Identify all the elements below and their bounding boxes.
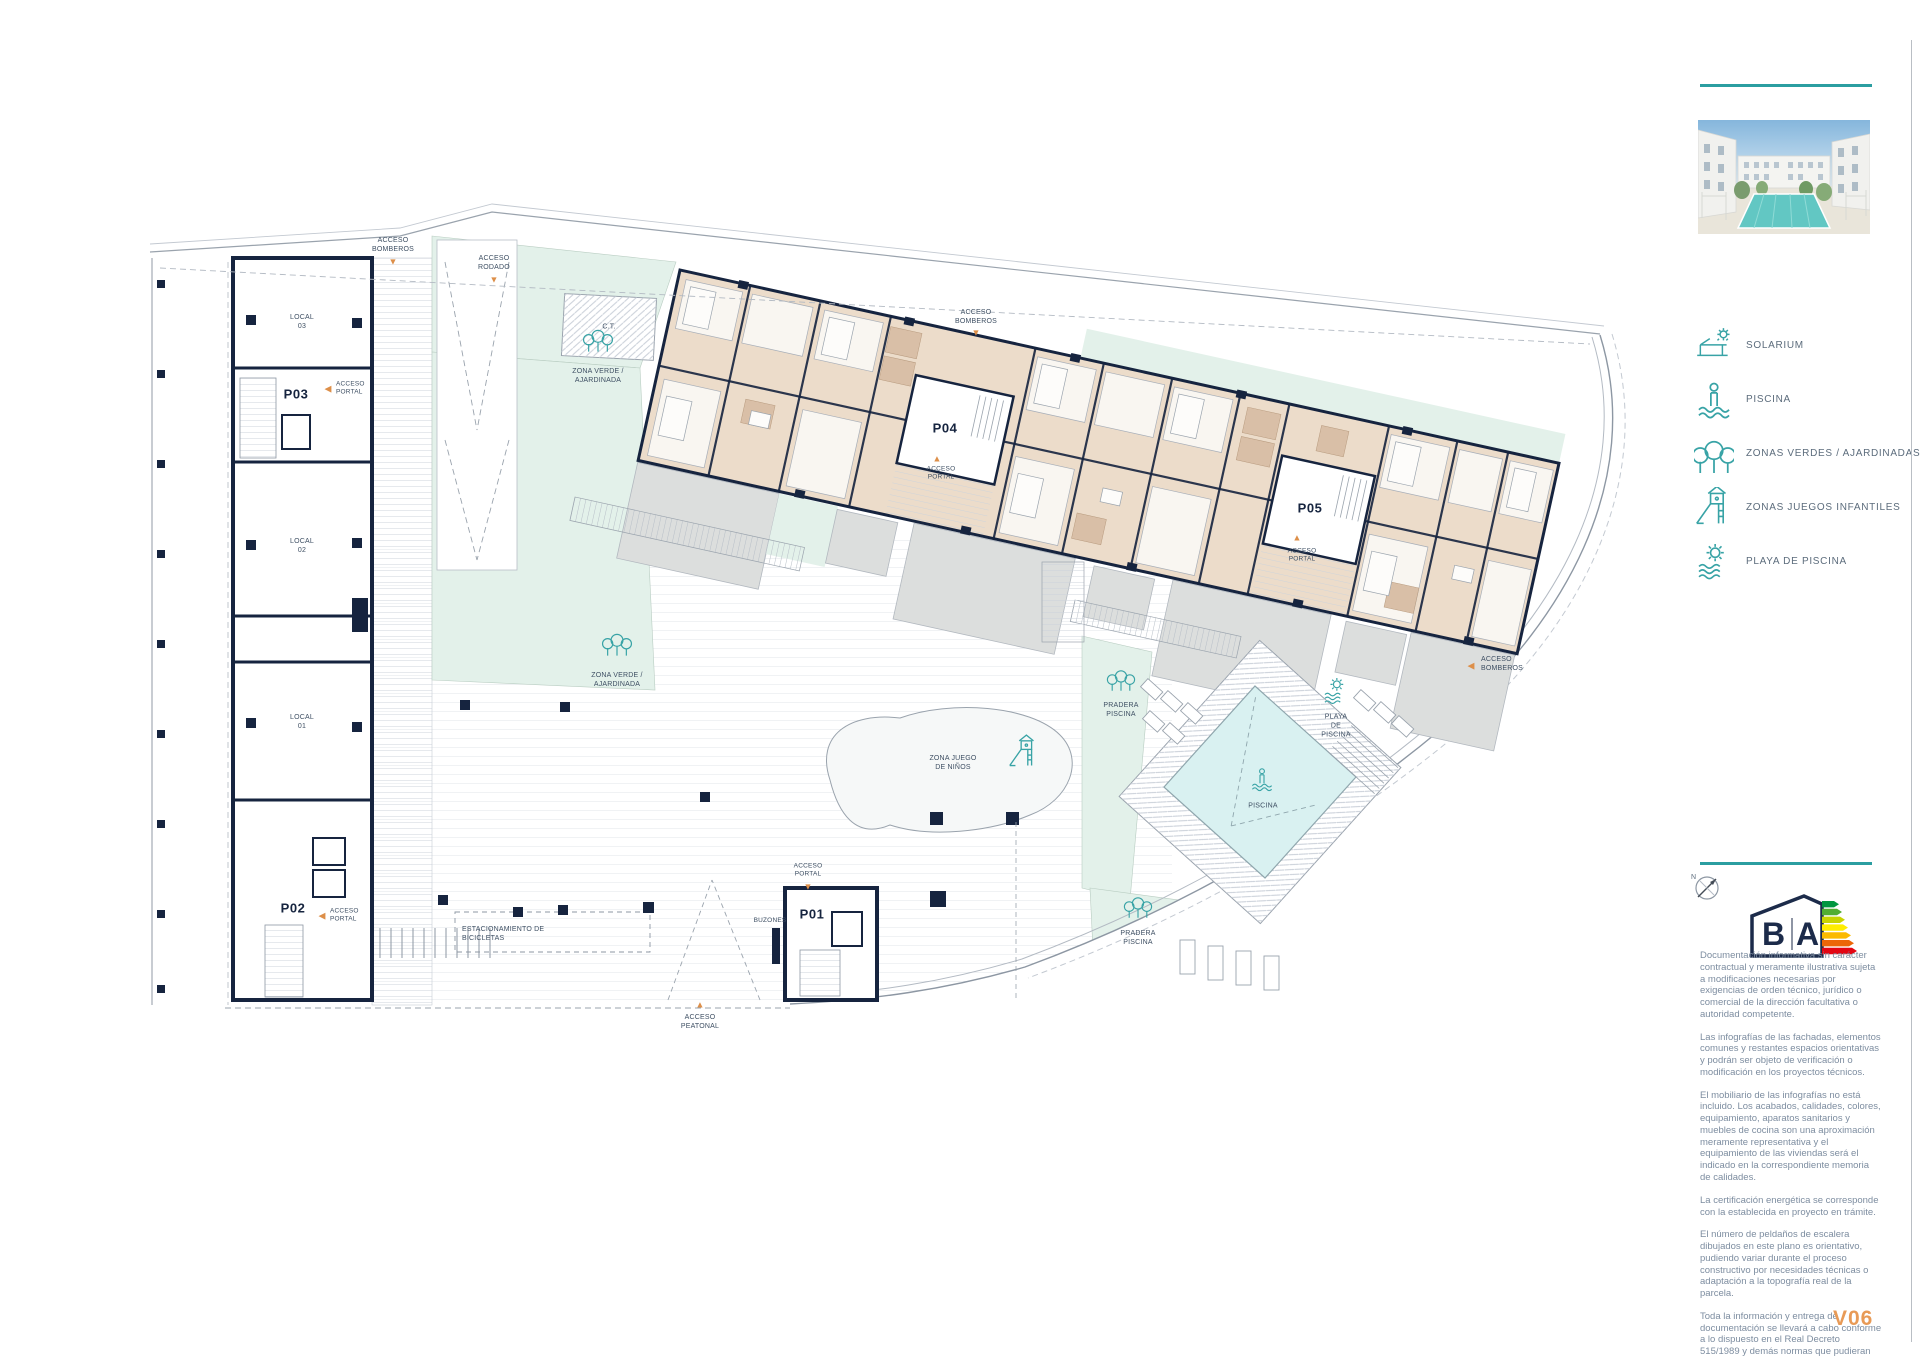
access-arrow-icon: ▼ (389, 258, 398, 267)
local-label: LOCAL 01 (290, 713, 314, 731)
access-arrow-icon: ▼ (972, 329, 981, 338)
left-building (233, 258, 372, 1000)
access-arrow-icon: ◀ (325, 385, 332, 394)
access-arrow-icon: ▲ (933, 455, 942, 464)
ct-label: C.T. (602, 322, 615, 331)
sidebar-top-rule (1700, 84, 1872, 87)
energy-letter-a: A (1796, 916, 1819, 952)
access-label-bomberos: ACCESO BOMBEROS (372, 236, 414, 254)
local-label: LOCAL 03 (290, 313, 314, 331)
compass-n-label: N (1691, 874, 1696, 881)
portal-label-p03: P03 (284, 387, 309, 402)
access-label-portal: ACCESO PORTAL (330, 908, 359, 925)
local-label: LOCAL 02 (290, 537, 314, 555)
zone-label-piscina: PISCINA (1248, 801, 1277, 810)
disclaimer-paragraph: Las infografías de las fachadas, element… (1700, 1032, 1882, 1079)
solarium-icon (1694, 325, 1734, 365)
playa-piscina-icon (1694, 541, 1734, 581)
access-label-bomberos: ACCESO BOMBEROS (1481, 655, 1523, 673)
site-plan (0, 0, 1920, 1356)
legend-item-playa-piscina: PLAYA DE PISCINA (1694, 541, 1920, 581)
walkway-strip (372, 258, 432, 1005)
legend-label: ZONAS VERDES / AJARDINADAS (1746, 448, 1920, 459)
portal-label-p05: P05 (1298, 501, 1323, 516)
portal-label-p04: P04 (933, 421, 958, 436)
access-label-portal: ACCESO PORTAL (794, 863, 823, 880)
energy-letter-b: B (1762, 916, 1785, 952)
portal-p01-block (772, 888, 877, 1000)
zone-label-verde: ZONA VERDE / AJARDINADA (572, 367, 623, 385)
zone-label-playa: PLAYA DE PISCINA (1321, 712, 1350, 739)
zone-label-pradera: PRADERA PISCINA (1103, 701, 1138, 719)
sidebar-bottom-rule (1700, 862, 1872, 865)
zone-label-verde: ZONA VERDE / AJARDINADA (591, 671, 642, 689)
legend-label: PLAYA DE PISCINA (1746, 556, 1847, 567)
mailboxes-label: BUZONES (754, 917, 787, 925)
sun-waves-icon (1325, 678, 1343, 704)
portal-label-p02: P02 (281, 901, 306, 916)
legend-item-solarium: SOLARIUM (1694, 325, 1920, 365)
legend-label: PISCINA (1746, 394, 1791, 405)
legend-label: SOLARIUM (1746, 340, 1804, 351)
zonas-verdes-icon (1694, 433, 1734, 473)
disclaimer-paragraph: El mobiliario de las infografías no está… (1700, 1090, 1882, 1184)
juegos-infantiles-icon (1694, 487, 1734, 527)
floor-plan-page: ACCESO BOMBEROS ▼ ACCESO RODADO ▼ ACCESO… (0, 0, 1920, 1356)
courtyard-stairs (1042, 562, 1084, 642)
access-label-portal: ACCESO PORTAL (336, 381, 365, 398)
portal-label-p01: P01 (800, 907, 825, 922)
access-arrow-icon: ▼ (804, 883, 813, 892)
version-label: V06 (1833, 1307, 1873, 1331)
disclaimer-paragraph: El número de peldaños de escalera dibuja… (1700, 1229, 1882, 1300)
vehicle-ramp (437, 240, 517, 570)
access-arrow-icon: ▼ (490, 276, 499, 285)
page-edge-line (1911, 40, 1912, 1342)
north-compass-icon: N (1688, 870, 1724, 904)
legend-label: ZONAS JUEGOS INFANTILES (1746, 502, 1900, 513)
disclaimer-paragraph: La certificación energética se correspon… (1700, 1195, 1882, 1219)
zone-label-juegos: ZONA JUEGO DE NIÑOS (929, 754, 976, 772)
piscina-icon (1694, 379, 1734, 419)
disclaimer-text: Documentación informativa sin carácter c… (1700, 950, 1882, 1356)
access-label-portal: ACCESO PORTAL (927, 466, 956, 483)
access-label-bomberos: ACCESO BOMBEROS (955, 308, 997, 326)
legend-item-juegos-infantiles: ZONAS JUEGOS INFANTILES (1694, 487, 1920, 527)
project-photo (1698, 120, 1870, 234)
access-label-rodado: ACCESO RODADO (478, 254, 510, 272)
access-arrow-icon: ◀ (319, 912, 326, 921)
disclaimer-paragraph: Documentación informativa sin carácter c… (1700, 950, 1882, 1021)
energy-bars (1822, 901, 1857, 954)
zone-label-pradera: PRADERA PISCINA (1120, 929, 1155, 947)
legend-item-zonas-verdes: ZONAS VERDES / AJARDINADAS (1694, 433, 1920, 473)
access-label-peatonal: ACCESO PEATONAL (681, 1013, 719, 1031)
bike-parking-label: ESTACIONAMIENTO DE BICICLETAS (462, 925, 544, 943)
legend-item-piscina: PISCINA (1694, 379, 1920, 419)
access-label-portal: ACCESO PORTAL (1288, 548, 1317, 565)
access-arrow-icon: ▲ (1293, 534, 1302, 543)
boundary-posts (157, 280, 165, 993)
access-arrow-icon: ◀ (1468, 662, 1475, 671)
access-arrow-icon: ▲ (696, 1001, 705, 1010)
